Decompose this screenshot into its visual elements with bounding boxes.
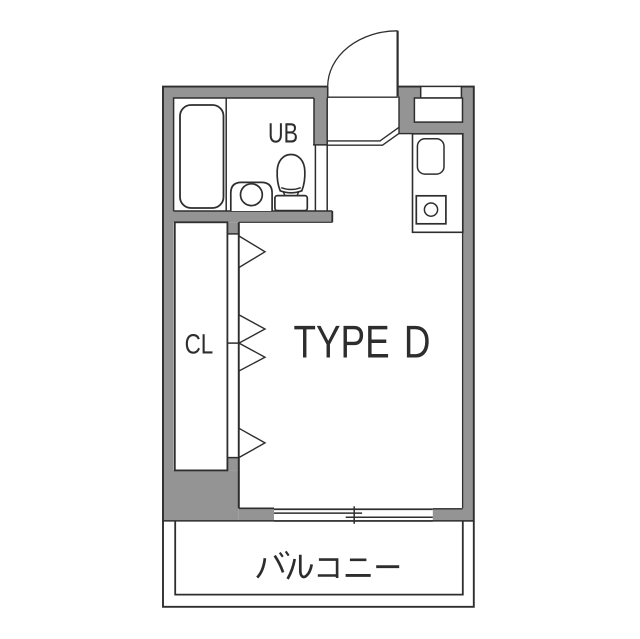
svg-text:CL: CL: [185, 329, 214, 360]
svg-text:UB: UB: [268, 118, 298, 149]
svg-text:TYPE D: TYPE D: [294, 316, 431, 368]
